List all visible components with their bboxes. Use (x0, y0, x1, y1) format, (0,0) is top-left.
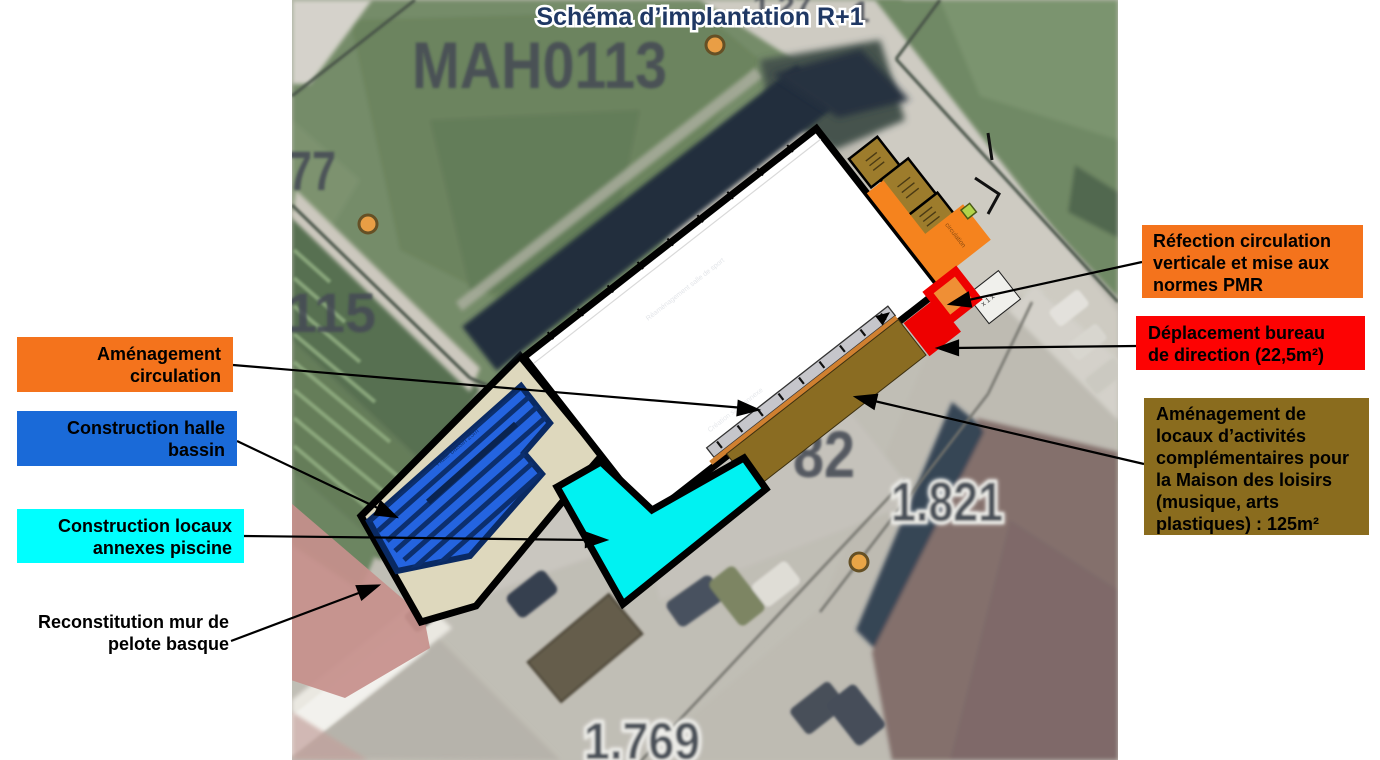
svg-text:la Maison des loisirs: la Maison des loisirs (1156, 470, 1332, 490)
svg-text:annexes piscine: annexes piscine (93, 538, 232, 558)
svg-text:Reconstitution mur de: Reconstitution mur de (38, 612, 229, 632)
svg-text:circulation: circulation (130, 366, 221, 386)
svg-text:verticale et mise aux: verticale et mise aux (1153, 253, 1329, 273)
svg-text:normes PMR: normes PMR (1153, 275, 1263, 295)
svg-text:bassin: bassin (168, 440, 225, 460)
svg-text:complémentaires pour: complémentaires pour (1156, 448, 1349, 468)
svg-text:Déplacement bureau: Déplacement bureau (1148, 323, 1325, 343)
svg-text:Aménagement: Aménagement (97, 344, 221, 364)
svg-text:de direction (22,5m²): de direction (22,5m²) (1148, 345, 1324, 365)
svg-text:Construction halle: Construction halle (67, 418, 225, 438)
svg-text:Schéma d’implantation R+1: Schéma d’implantation R+1 (536, 3, 863, 31)
svg-text:(musique, arts: (musique, arts (1156, 492, 1279, 512)
svg-text:locaux d’activités: locaux d’activités (1156, 426, 1306, 446)
svg-text:Réfection circulation: Réfection circulation (1153, 231, 1331, 251)
svg-text:Construction locaux: Construction locaux (58, 516, 232, 536)
svg-text:pelote basque: pelote basque (108, 634, 229, 654)
svg-text:Aménagement de: Aménagement de (1156, 404, 1306, 424)
svg-text:plastiques) : 125m²: plastiques) : 125m² (1156, 514, 1319, 534)
